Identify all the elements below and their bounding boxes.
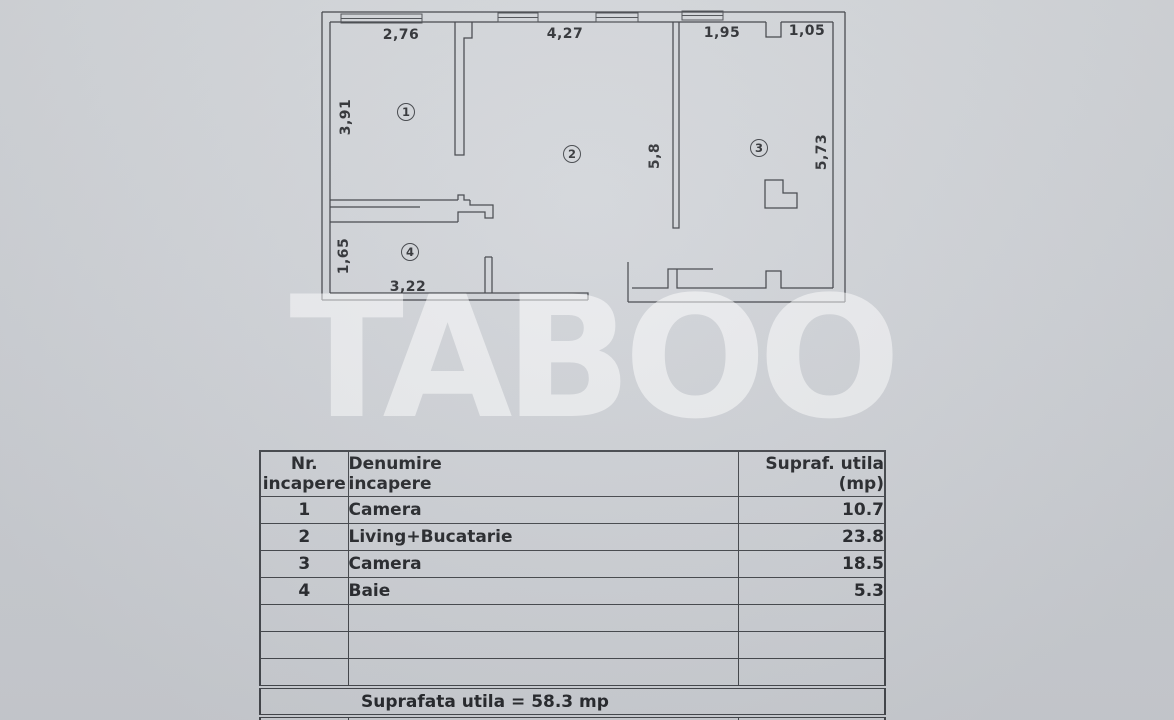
cell-area (738, 659, 885, 688)
dimension-label: 3,91 (338, 99, 354, 136)
cell-name (348, 605, 738, 632)
dimension-label: 4,27 (547, 26, 584, 42)
header-supraf-utila: Supraf. utila (mp) (738, 451, 885, 497)
cell-nr: 1 (260, 497, 348, 524)
total-row: Suprafata utila = 58.3 mp (260, 687, 885, 716)
header-denumire-incapere: Denumire incapere (348, 451, 738, 497)
dimension-label: 2,76 (383, 27, 420, 43)
cell-area (738, 632, 885, 659)
table-row (260, 632, 885, 659)
cell-area: 10.7 (738, 497, 885, 524)
header-nr-incapere: Nr. incapere (260, 451, 348, 497)
table-row: 2Living+Bucatarie23.8 (260, 524, 885, 551)
table-row (260, 659, 885, 688)
dimension-label: 1,95 (704, 25, 741, 41)
table-row: 1Camera10.7 (260, 497, 885, 524)
cell-nr: 4 (260, 578, 348, 605)
table-row: 4Baie5.3 (260, 578, 885, 605)
dimension-label: 1,05 (789, 23, 826, 39)
cell-area: 5.3 (738, 578, 885, 605)
cell-name: Baie (348, 578, 738, 605)
room-number-badge: 1 (397, 103, 415, 121)
dimension-label: 5,8 (647, 143, 663, 169)
table-row: 3Camera18.5 (260, 551, 885, 578)
dimension-label: 5,73 (814, 134, 830, 171)
cell-nr: 2 (260, 524, 348, 551)
cell-nr: 3 (260, 551, 348, 578)
cell-area (738, 605, 885, 632)
area-table: Nr. incapere Denumire incapere Supraf. u… (259, 450, 886, 720)
partial-bottom-row (260, 716, 885, 720)
table-header-row: Nr. incapere Denumire incapere Supraf. u… (260, 451, 885, 497)
taboo-watermark: TABOO (276, 288, 906, 436)
total-label: Suprafata utila = 58.3 mp (260, 687, 885, 716)
cell-name (348, 632, 738, 659)
cell-name: Camera (348, 551, 738, 578)
room-number-badge: 2 (563, 145, 581, 163)
room-number-badge: 4 (401, 243, 419, 261)
cell-area: 18.5 (738, 551, 885, 578)
cell-area: 23.8 (738, 524, 885, 551)
scanned-floor-plan-page: 2,764,271,951,053,915,85,731,653,221234 … (0, 0, 1174, 720)
cell-nr (260, 605, 348, 632)
cell-name: Living+Bucatarie (348, 524, 738, 551)
cell-nr (260, 659, 348, 688)
cell-name: Camera (348, 497, 738, 524)
cell-name (348, 659, 738, 688)
room-number-badge: 3 (750, 139, 768, 157)
table-row (260, 605, 885, 632)
cell-nr (260, 632, 348, 659)
